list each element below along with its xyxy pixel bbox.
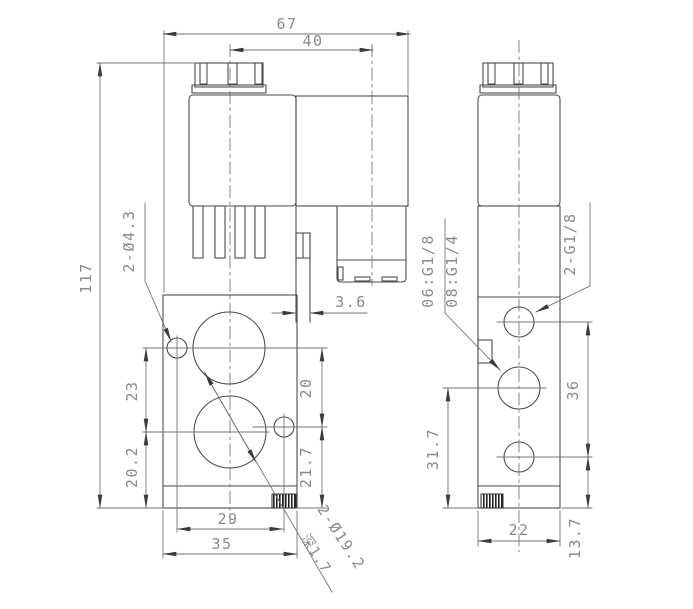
cooling-fins: [193, 206, 265, 258]
dim-port-span-lower: 21.7: [297, 427, 322, 508]
dim-port-span-upper: 20: [297, 348, 322, 427]
front-dimensions: 67 40 117 23 20.2 20 21.7 29: [77, 15, 410, 592]
dim-body-width-label: 35: [211, 535, 232, 553]
solenoid-coil: [189, 95, 296, 206]
adapter-plate: [296, 206, 310, 322]
dim-overall-height-label: 117: [77, 262, 95, 294]
dim-port-span-label: 36: [564, 379, 582, 400]
dim-mount-hole-span: 29: [177, 510, 283, 529]
note-counterbore: 2-Ø19.2 深1.7: [204, 372, 369, 592]
connector-foot: [382, 277, 397, 281]
dim-port-span-upper-label: 20: [297, 377, 315, 398]
dim-hole-span-lower-label: 20.2: [123, 446, 141, 488]
dim-mid-port-height: 31.7: [424, 388, 448, 508]
dim-hole-span-upper: 23: [123, 348, 146, 432]
dim-overall-width-label: 67: [276, 15, 297, 33]
cap-rib: [228, 63, 237, 84]
cap-rib: [514, 63, 523, 84]
note-mount-holes-label: 2-Ø4.3: [120, 209, 138, 272]
cap-flange: [480, 85, 556, 93]
dim-mount-hole-span-label: 29: [217, 510, 238, 528]
dim-overall-width: 67: [163, 15, 410, 34]
solenoid-cap: [192, 63, 266, 93]
dim-bottom-port-height-label: 13.7: [566, 517, 584, 559]
valve-technical-drawing: 67 40 117 23 20.2 20 21.7 29: [0, 0, 693, 609]
note-side-ports-label: 2-G1/8: [561, 212, 579, 275]
dim-body-width: 35: [163, 535, 297, 554]
drawing-canvas: 67 40 117 23 20.2 20 21.7 29: [0, 0, 693, 609]
dim-port-span: 36: [564, 322, 588, 457]
dim-port-span-lower-label: 21.7: [297, 446, 315, 488]
dim-hole-span-lower: 20.2: [123, 432, 146, 508]
cap-rib: [488, 63, 495, 84]
front-ports: [167, 312, 294, 468]
dim-overall-height: 117: [77, 63, 100, 508]
cap-flange: [192, 85, 266, 93]
note-side-ports: 2-G1/8: [536, 203, 590, 312]
connector-step: [338, 267, 343, 280]
dim-hole-span-upper-label: 23: [123, 380, 141, 401]
front-view: [163, 44, 408, 524]
connector-lower-shell: [337, 207, 406, 282]
dim-body-depth-label: 22: [508, 521, 529, 539]
dim-solenoid-offset: 40: [230, 32, 373, 50]
cap-rib: [200, 63, 207, 84]
connector-housing: [296, 96, 408, 282]
connector-foot: [355, 277, 370, 281]
note-port-thread-08-label: 08:G1/4: [443, 234, 461, 308]
side-dimensions: 36 13.7 31.7 22 06:G1/8 08:G1/4 2-G1/8: [419, 203, 592, 559]
side-solenoid-cap: [480, 63, 556, 93]
side-view: [478, 40, 560, 552]
dim-body-depth: 22: [478, 521, 560, 541]
dim-plate-thickness-label: 3.6: [335, 293, 367, 311]
manual-override-knurl: [481, 494, 503, 508]
dim-plate-thickness: 3.6: [272, 293, 367, 313]
note-port-thread-06-label: 06:G1/8: [419, 234, 437, 308]
cap-rib: [255, 63, 262, 84]
dim-solenoid-offset-label: 40: [302, 32, 323, 50]
note-counterbore-depth-label: 深1.7: [297, 531, 334, 576]
dim-mid-port-height-label: 31.7: [424, 428, 442, 470]
note-port-threads: 06:G1/8 08:G1/4: [419, 219, 500, 370]
cap-rib: [541, 63, 548, 84]
